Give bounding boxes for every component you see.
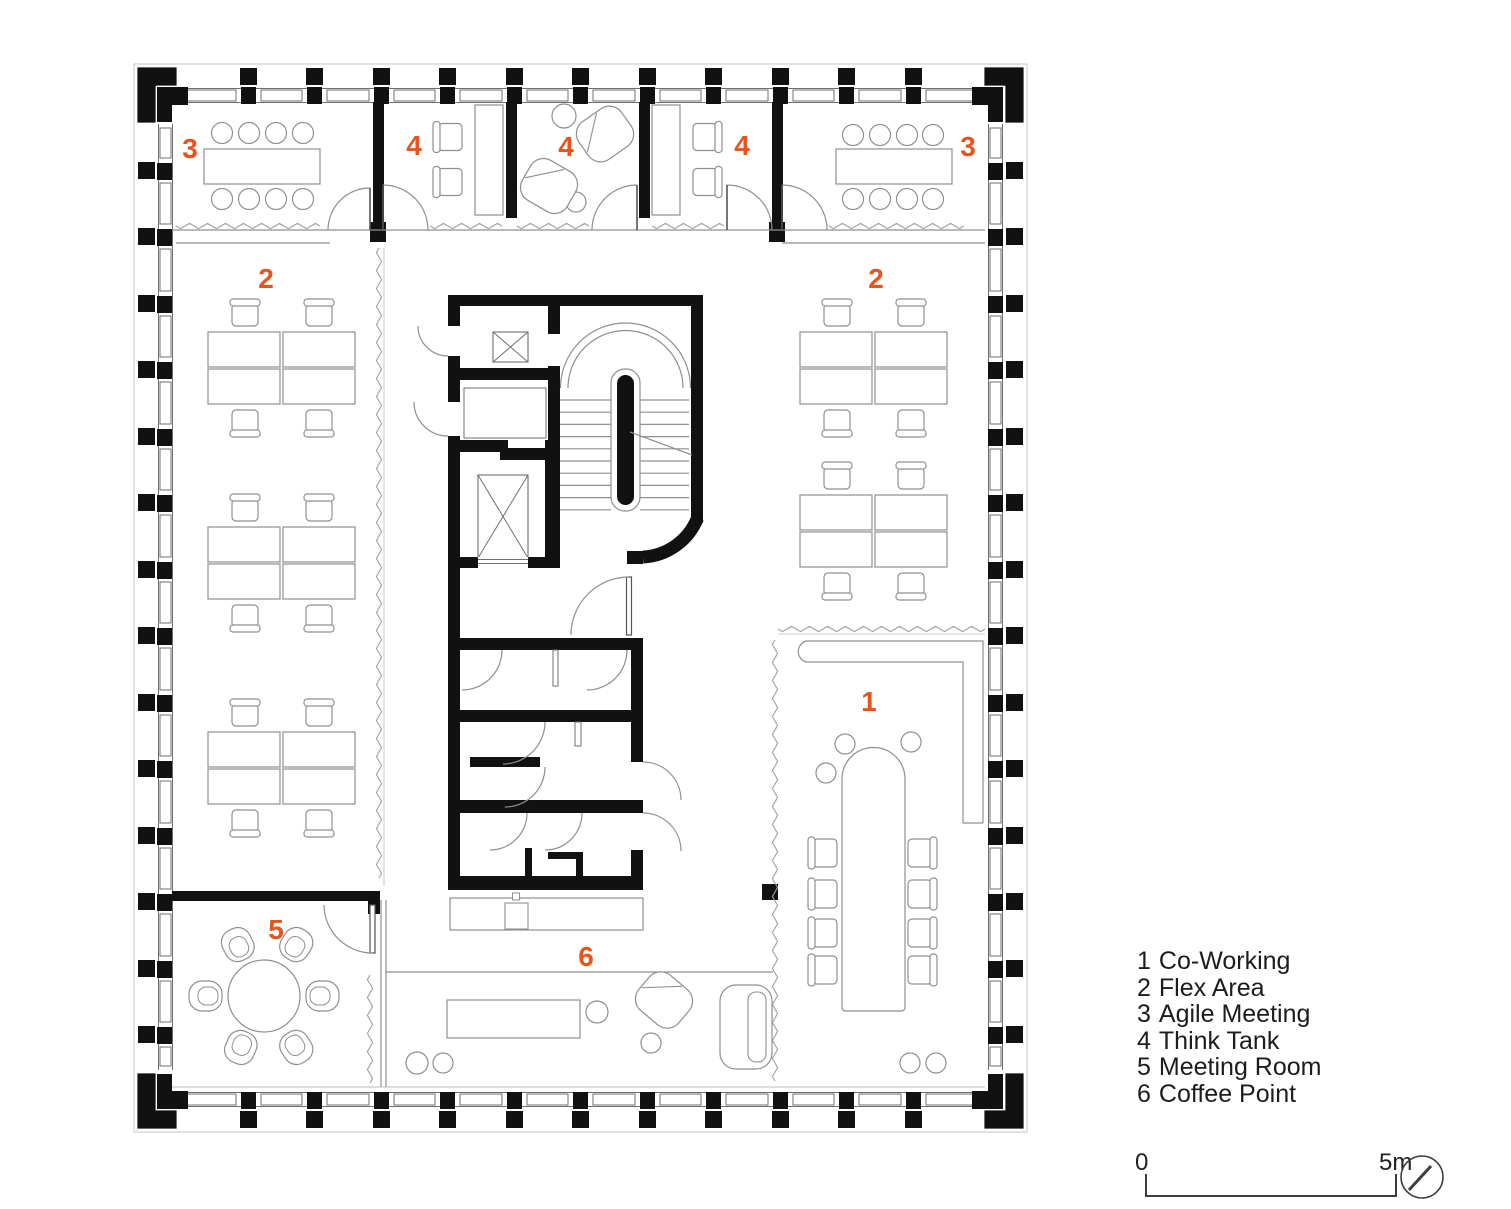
legend-item-label: Coffee Point (1159, 1080, 1296, 1108)
room-label-think-tank-a: 4 (406, 130, 422, 161)
room-label-think-tank-b: 4 (558, 131, 574, 162)
room-label-think-tank-c: 4 (734, 130, 750, 161)
legend-item-6: 6Coffee Point (1137, 1081, 1321, 1108)
room-label-flex-area-right: 2 (868, 263, 884, 294)
scale-bar (1130, 1145, 1460, 1209)
legend-item-number: 1 (1137, 947, 1151, 975)
legend-item-number: 5 (1137, 1053, 1151, 1081)
legend-item-5: 5Meeting Room (1137, 1054, 1321, 1081)
legend-item-number: 3 (1137, 1000, 1151, 1028)
scale-bar-bracket (1146, 1174, 1396, 1196)
floor-plan-page: 3444322156 1Co-Working2Flex Area3Agile M… (0, 0, 1511, 1209)
room-label-co-working: 1 (861, 686, 877, 717)
legend-item-4: 4Think Tank (1137, 1028, 1321, 1055)
lounge-chair (629, 966, 698, 1035)
legend: 1Co-Working2Flex Area3Agile Meeting4Thin… (1137, 948, 1321, 1107)
room-label-agile-meeting-right: 3 (960, 131, 976, 162)
legend-item-label: Co-Working (1159, 947, 1291, 975)
legend-item-label: Meeting Room (1159, 1053, 1322, 1081)
legend-item-label: Flex Area (1159, 974, 1265, 1002)
north-indicator-icon (1401, 1156, 1443, 1198)
legend-item-number: 6 (1137, 1080, 1151, 1108)
legend-item-number: 4 (1137, 1027, 1151, 1055)
legend-item-1: 1Co-Working (1137, 948, 1321, 975)
shell-chair (217, 923, 259, 966)
legend-item-label: Think Tank (1159, 1027, 1279, 1055)
lounge-chair (571, 100, 640, 168)
room-label-agile-meeting-left: 3 (182, 133, 198, 164)
sofa (720, 985, 772, 1069)
legend-item-3: 3Agile Meeting (1137, 1001, 1321, 1028)
shell-chair (306, 981, 339, 1011)
legend-item-number: 2 (1137, 974, 1151, 1002)
legend-item-label: Agile Meeting (1159, 1000, 1310, 1028)
shell-chair (220, 1026, 261, 1068)
legend-item-2: 2Flex Area (1137, 975, 1321, 1002)
shell-chair (275, 1025, 318, 1069)
room-label-flex-area-left: 2 (258, 263, 274, 294)
room-label-coffee-point: 6 (578, 941, 594, 972)
room-label-meeting-room: 5 (268, 914, 284, 945)
shell-chair (189, 981, 222, 1011)
